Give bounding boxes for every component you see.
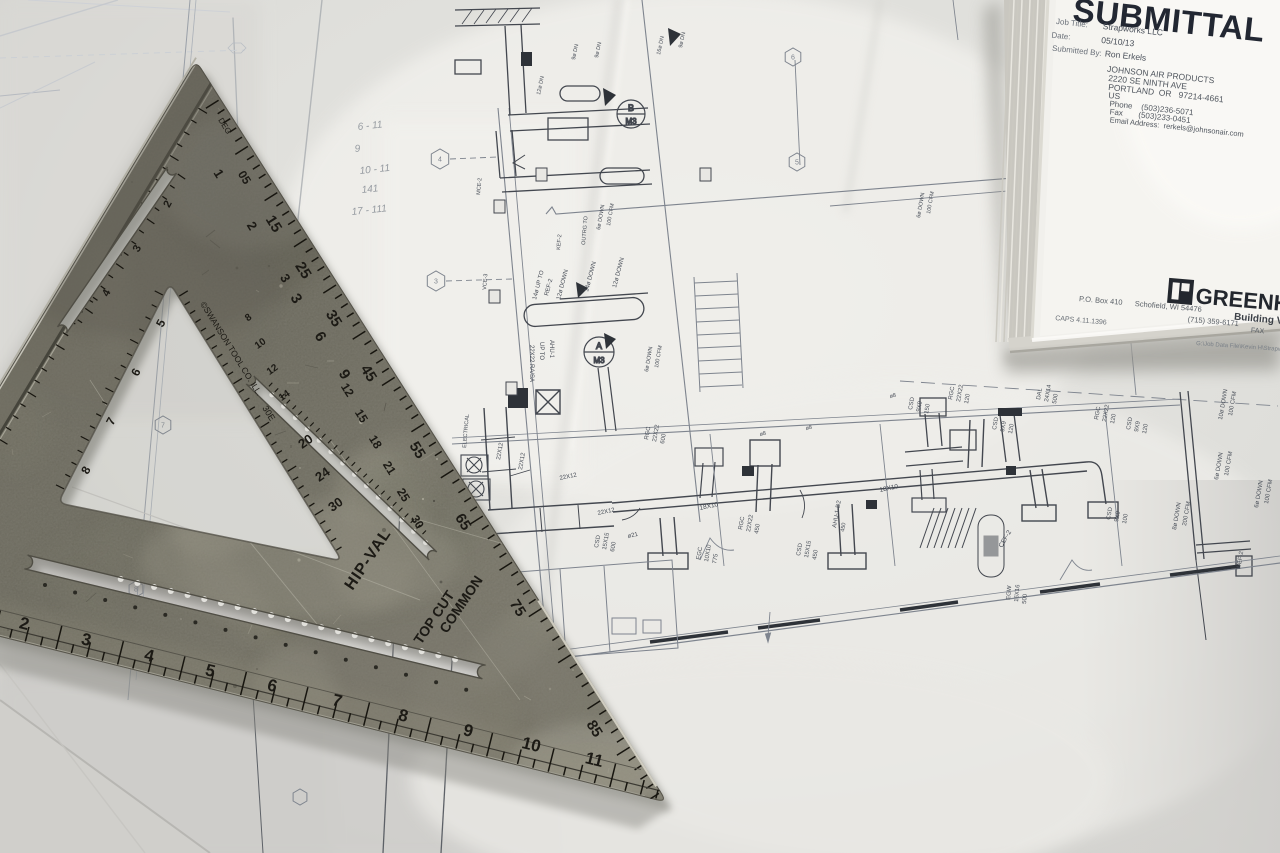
svg-text:A: A bbox=[596, 341, 602, 351]
svg-text:5: 5 bbox=[795, 160, 799, 167]
svg-text:B: B bbox=[628, 103, 634, 113]
svg-text:M3: M3 bbox=[593, 356, 605, 365]
svg-text:3: 3 bbox=[434, 279, 438, 286]
svg-text:500: 500 bbox=[1022, 593, 1029, 604]
svg-text:141: 141 bbox=[361, 183, 379, 196]
svg-text:EGW: EGW bbox=[1006, 585, 1013, 600]
svg-text:FAX: FAX bbox=[1251, 327, 1265, 335]
svg-text:6: 6 bbox=[791, 55, 795, 62]
svg-text:AHU-1: AHU-1 bbox=[548, 340, 554, 359]
svg-text:M3: M3 bbox=[625, 117, 637, 126]
svg-text:4: 4 bbox=[438, 157, 442, 164]
svg-text:22X22 RA/SA: 22X22 RA/SA bbox=[528, 345, 534, 382]
svg-text:UP TO: UP TO bbox=[538, 342, 544, 360]
